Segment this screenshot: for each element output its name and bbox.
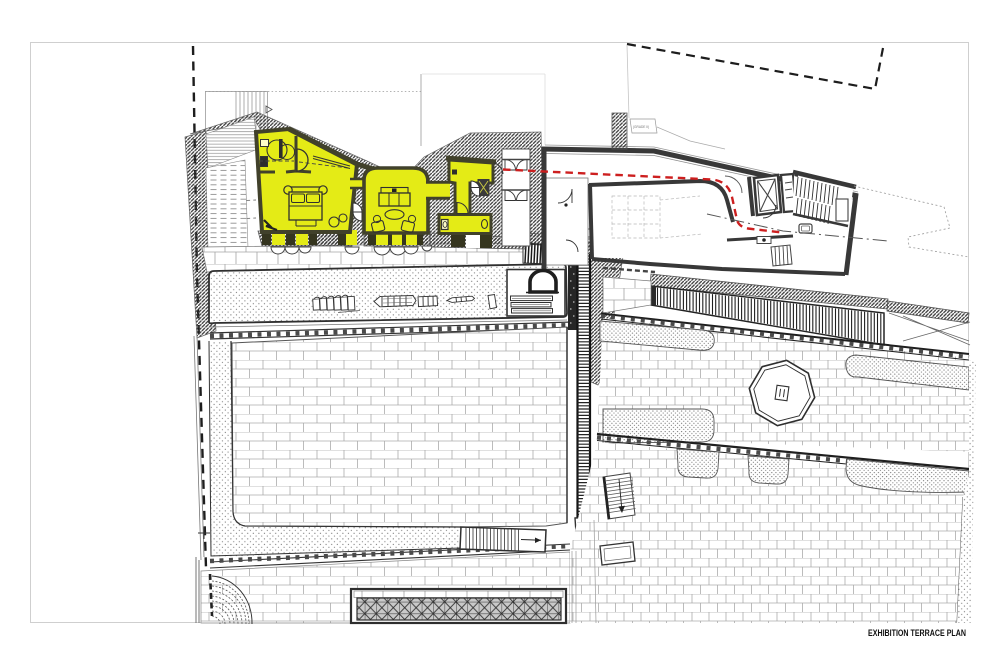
svg-text:EXHIBITION TERRACE PLAN: EXHIBITION TERRACE PLAN [868,628,966,638]
svg-text:(GRADE II): (GRADE II) [633,125,649,129]
